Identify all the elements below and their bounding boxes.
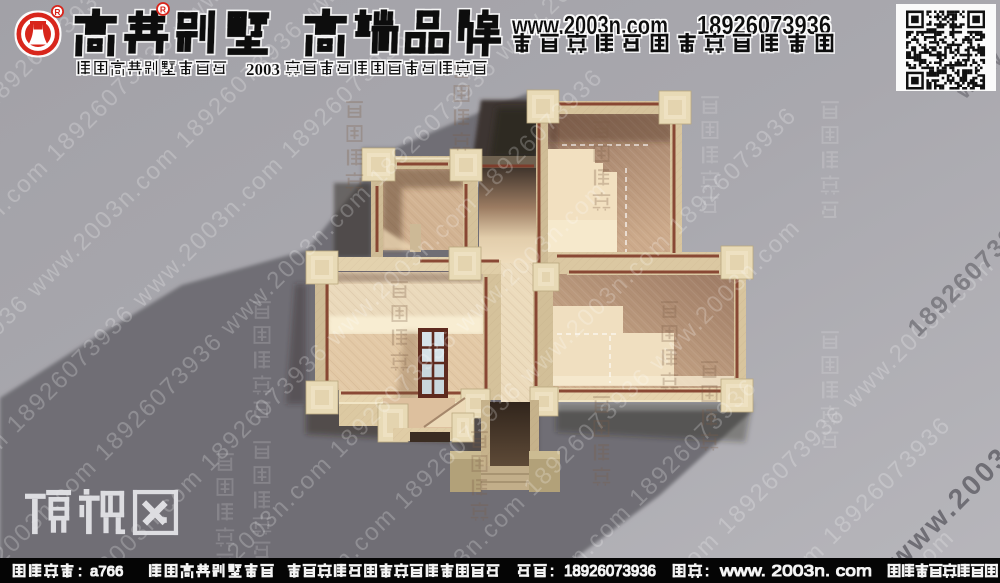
svg-text:R: R: [54, 7, 60, 17]
svg-text:www.2003n.com: www.2003n.com: [511, 10, 668, 40]
svg-text::: :: [550, 563, 554, 580]
svg-text:R: R: [160, 5, 166, 15]
svg-text::: :: [78, 563, 82, 580]
svg-text:2003: 2003: [246, 60, 280, 79]
svg-text:18926073936: 18926073936: [564, 563, 656, 580]
svg-text::: :: [705, 563, 709, 580]
svg-text:www. 2003n. com: www. 2003n. com: [719, 563, 872, 580]
svg-text:a766: a766: [90, 563, 123, 580]
